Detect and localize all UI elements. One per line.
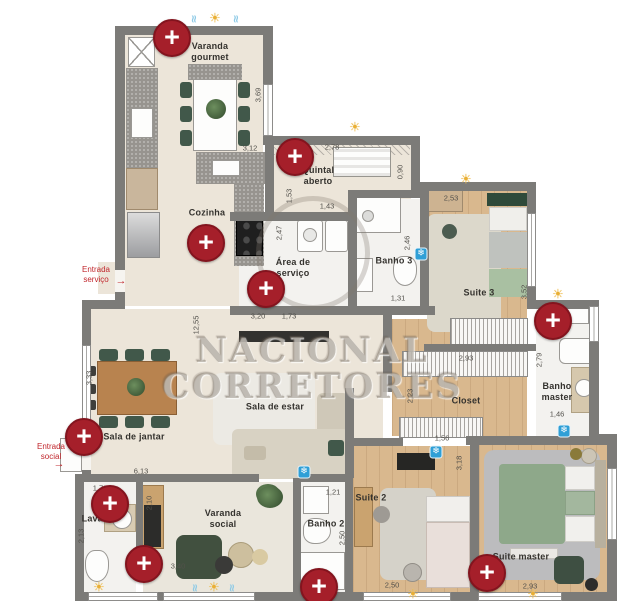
armchair [554, 556, 584, 584]
photo-marker-banho-master[interactable]: + [534, 302, 572, 340]
dimension-label: 3,12 [243, 144, 258, 153]
varanda-social-label: Varanda social [205, 508, 241, 530]
sala-de-jantar-label: Sala de jantar [103, 432, 164, 443]
wall [115, 26, 273, 35]
varanda-gourmet-label: Varanda gourmet [191, 41, 228, 63]
photo-marker-varanda-gourmet[interactable]: + [153, 19, 191, 57]
pouf [585, 578, 598, 591]
wall [263, 26, 273, 86]
wall [424, 344, 536, 351]
dimension-label: 2,23 [406, 389, 415, 404]
dimension-label: 2,10 [145, 496, 154, 511]
plant [127, 378, 145, 396]
chair [238, 106, 250, 122]
entrada-servico-arrow: → [116, 275, 127, 287]
dimension-label: 2,46 [403, 236, 412, 251]
chair [125, 416, 144, 428]
dimension-label: 2,47 [275, 226, 284, 241]
photo-marker-sala-de-jantar[interactable]: + [65, 418, 103, 456]
stool [403, 563, 422, 582]
shower-head [362, 210, 374, 222]
sun-icon: ☀ [349, 121, 361, 136]
chair [125, 349, 144, 361]
dimension-label: 1,56 [435, 434, 450, 443]
kitchen-cabinet [126, 168, 158, 210]
bed-headboard [595, 460, 606, 548]
dimension-label: 1,31 [391, 294, 406, 303]
dimension-label: 2,50 [385, 581, 400, 590]
dimension-label: 2,50 [338, 531, 347, 546]
snowflake-icon: ❄ [298, 466, 311, 479]
dimension-label: 1,73 [282, 312, 297, 321]
window [589, 306, 599, 342]
toilet [85, 550, 109, 582]
wall [265, 136, 274, 221]
water-icon: ≈ [226, 583, 239, 592]
sun-icon: ☀ [407, 588, 419, 601]
sun-icon: ☀ [209, 12, 221, 27]
sun-icon: ☀ [527, 588, 539, 601]
floor-plan: NACIONAL CORRETORES Varanda gourmetQuint… [0, 0, 631, 601]
dimension-label: 1,21 [326, 488, 341, 497]
photo-marker-area-de-servico[interactable]: + [247, 270, 285, 308]
bed-pillow [565, 516, 595, 542]
wall [75, 474, 259, 482]
plant [206, 99, 226, 119]
kitchen-sink [212, 160, 240, 176]
chair [238, 82, 250, 98]
suite-3-label: Suite 3 [464, 288, 495, 299]
dimension-label: 0,90 [396, 165, 405, 180]
photo-marker-suite-master[interactable]: + [468, 554, 506, 592]
bar-shelf [144, 505, 161, 547]
dimension-label: 3,20 [251, 312, 266, 321]
banho-2-label: Banho 2 [308, 519, 345, 530]
dimension-label: 2,93 [459, 354, 474, 363]
area-de-servico-label: Área de serviço [276, 257, 310, 279]
water-icon: ≈ [189, 583, 202, 592]
plant-pot [252, 549, 268, 565]
chair [180, 130, 192, 146]
banho-3-label: Banho 3 [376, 256, 413, 267]
window [82, 345, 91, 429]
wall [345, 438, 403, 446]
gourmet-counter [188, 64, 242, 80]
watermark-line2: CORRETORES [162, 366, 463, 407]
bed-duvet [499, 464, 565, 544]
bed-sheet [489, 232, 527, 268]
dimension-label: 1,43 [320, 202, 335, 211]
window [263, 84, 273, 136]
sun-icon: ☀ [208, 581, 220, 596]
sun-icon: ☀ [552, 288, 564, 303]
wall [348, 190, 429, 198]
wall [115, 26, 125, 274]
sun-icon: ☀ [460, 173, 472, 188]
watermark-line1: NACIONAL [195, 330, 429, 371]
bed-body [426, 522, 470, 588]
wall [466, 436, 616, 445]
kitchen-sink [131, 108, 153, 138]
bed-headboard [487, 193, 529, 206]
entrada-social-arrow: → [54, 458, 65, 470]
dimension-label: 6,13 [134, 467, 149, 476]
ac-condenser [333, 147, 391, 177]
wall [82, 300, 125, 309]
side-table [581, 448, 597, 464]
chair [180, 82, 192, 98]
photo-marker-banho-2[interactable]: + [300, 568, 338, 601]
desk-chair [442, 224, 457, 239]
dimension-label: 2,79 [535, 353, 544, 368]
wall [411, 136, 420, 197]
entrada-servico-label: Entrada serviço [82, 265, 110, 285]
sofa-cushion [244, 446, 266, 460]
bed-pillow [565, 466, 595, 490]
plant-pot [215, 556, 233, 574]
window [478, 592, 562, 601]
chair [180, 106, 192, 122]
photo-marker-varanda-social[interactable]: + [125, 545, 163, 583]
plant-pot [570, 448, 582, 460]
window [607, 468, 617, 540]
photo-marker-lavabo[interactable]: + [91, 485, 129, 523]
water-icon: ≈ [230, 14, 243, 23]
wardrobe [450, 318, 528, 345]
snowflake-icon: ❄ [558, 425, 571, 438]
photo-marker-cozinha[interactable]: + [187, 224, 225, 262]
suite-2-label: Suite 2 [356, 493, 387, 504]
bed-pillow [489, 207, 527, 231]
dimension-label: 1,53 [285, 189, 294, 204]
dimension-label: 3,18 [455, 456, 464, 471]
plant [257, 486, 283, 508]
sala-de-estar-label: Sala de estar [246, 402, 304, 413]
desk-chair [373, 506, 390, 523]
closet-label: Closet [452, 396, 481, 407]
sofa-pillow [328, 440, 344, 456]
wall [420, 182, 536, 191]
dimension-label: 3,69 [254, 88, 263, 103]
chair [151, 349, 170, 361]
dimension-label: 3,33 [85, 371, 94, 386]
lounge-chair [176, 535, 222, 579]
window [527, 213, 536, 287]
chair [151, 416, 170, 428]
bed-pillow [426, 496, 470, 522]
dimension-label: 2,53 [444, 194, 459, 203]
shaft [128, 37, 155, 67]
snowflake-icon: ❄ [430, 446, 443, 459]
dimension-label: 2,78 [325, 143, 340, 152]
chair [99, 349, 118, 361]
photo-marker-quintal-aberto[interactable]: + [276, 138, 314, 176]
cozinha-label: Cozinha [189, 208, 225, 219]
dimension-label: 12,55 [192, 316, 201, 335]
water-icon: ≈ [188, 14, 201, 23]
sun-icon: ☀ [93, 581, 105, 596]
bed-pillow [565, 491, 595, 515]
dimension-label: 1,46 [550, 410, 565, 419]
dimension-label: 3,40 [171, 562, 186, 571]
banho-master-label: Banho master [542, 381, 573, 403]
chair [99, 416, 118, 428]
dimension-label: 3,52 [520, 285, 529, 300]
dimension-label: 2,13 [77, 529, 86, 544]
fridge [127, 212, 160, 258]
snowflake-icon: ❄ [415, 248, 428, 261]
